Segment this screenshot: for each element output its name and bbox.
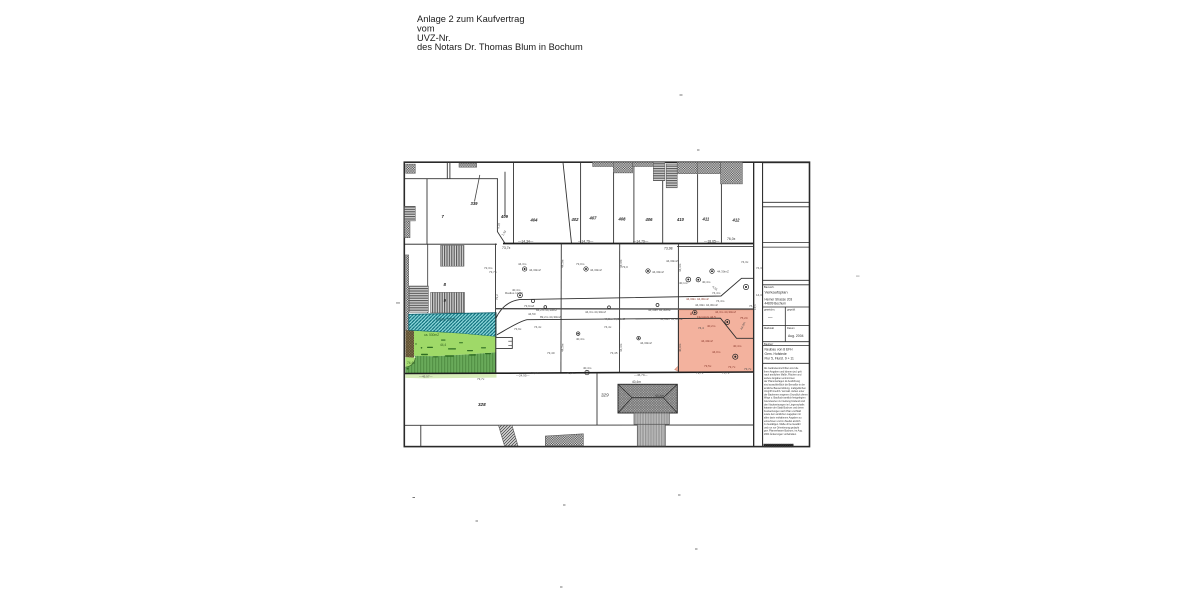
svg-text:14,3: 14,3 — [756, 293, 762, 297]
svg-text:410: 410 — [676, 217, 685, 222]
svg-text:des Notars Dr. Thomas Blum in: des Notars Dr. Thomas Blum in Bochum — [417, 42, 583, 52]
svg-text:339: 339 — [471, 201, 479, 206]
svg-text:44,3m: 44,3m — [619, 343, 623, 352]
svg-text:406: 406 — [645, 217, 654, 222]
svg-text:40,4m: 40,4m — [632, 380, 641, 384]
svg-text:73,98: 73,98 — [664, 247, 673, 251]
svg-text:Aug. 2004: Aug. 2004 — [788, 334, 804, 338]
svg-text:74,3x: 74,3x — [741, 260, 749, 264]
svg-text:73,0m: 73,0m — [576, 262, 585, 266]
svg-text:76,0x: 76,0x — [727, 237, 736, 241]
svg-text:73,7x: 73,7x — [728, 365, 736, 369]
svg-text:74,4m: 74,4m — [712, 291, 721, 295]
svg-text:44,30mZ: 44,30mZ — [640, 341, 652, 345]
svg-text:73,7x: 73,7x — [477, 377, 485, 381]
svg-text:44,50: 44,50 — [528, 312, 536, 316]
svg-text:Verkaufsplan: Verkaufsplan — [765, 290, 788, 295]
svg-text:geprüft: geprüft — [787, 308, 795, 312]
svg-text:44,0m: 44,0m — [712, 350, 721, 354]
svg-text:Flur 5, Flurst. 9 + 11: Flur 5, Flurst. 9 + 11 — [765, 357, 795, 361]
svg-text:44,30m 44,30mZ: 44,30m 44,30mZ — [648, 308, 671, 312]
svg-text:74,4m: 74,4m — [716, 299, 725, 303]
svg-text:44,30mZ: 44,30mZ — [590, 268, 602, 272]
svg-text:402: 402 — [571, 217, 580, 222]
svg-text:73,7x: 73,7x — [696, 371, 704, 375]
svg-text:44809 Bochum: 44809 Bochum — [765, 302, 787, 306]
svg-text:84,2m 44,30mZ: 84,2m 44,30mZ — [536, 308, 557, 312]
svg-text:408: 408 — [618, 217, 627, 222]
svg-text:328: 328 — [478, 402, 486, 407]
svg-text:40,4m: 40,4m — [583, 366, 592, 370]
svg-text:40,2m: 40,2m — [707, 324, 716, 328]
svg-text:Maßstab: Maßstab — [764, 326, 775, 330]
svg-text:329: 329 — [601, 393, 609, 398]
svg-text:44,30m 44,30mZ: 44,30m 44,30mZ — [660, 317, 683, 321]
svg-text:44,40mZ: 44,40mZ — [701, 339, 713, 343]
svg-text:44,4: 44,4 — [440, 343, 446, 347]
svg-text:44,3m: 44,3m — [518, 262, 527, 266]
svg-text:—14,34—: —14,34— — [518, 239, 534, 243]
svg-text:73,7x: 73,7x — [502, 246, 511, 250]
svg-text:44,3m 44,30mZ: 44,3m 44,30mZ — [585, 310, 606, 314]
svg-text:40,4m: 40,4m — [702, 280, 711, 284]
svg-text:Bauherr: Bauherr — [764, 342, 773, 346]
svg-text:—14,79—: —14,79— — [633, 239, 649, 243]
svg-text:40,9m: 40,9m — [678, 343, 682, 352]
svg-text:40,7m: 40,7m — [567, 371, 576, 375]
svg-text:—24,95—: —24,95— — [516, 374, 530, 378]
svg-text:73,5x: 73,5x — [704, 364, 712, 368]
svg-text:40,4m: 40,4m — [512, 288, 521, 292]
svg-text:411: 411 — [702, 217, 710, 222]
svg-text:89,2m 44,30mZ: 89,2m 44,30mZ — [540, 315, 561, 319]
svg-text:40,4m: 40,4m — [576, 337, 585, 341]
svg-text:407: 407 — [589, 216, 598, 221]
svg-text:Neubau von 8 EFH: Neubau von 8 EFH — [765, 348, 794, 352]
svg-text:44,30mZ: 44,30mZ — [652, 270, 664, 274]
svg-text:Flurstück 44,5: Flurstück 44,5 — [697, 315, 716, 319]
svg-text:74,4x: 74,4x — [604, 325, 612, 329]
svg-text:44,3m: 44,3m — [561, 259, 565, 268]
svg-text:Bauvorh.: Bauvorh. — [764, 285, 775, 289]
svg-text:44,30m 44,30mZ: 44,30m 44,30mZ — [695, 303, 718, 307]
svg-text:44,3m 44,30mZ: 44,3m 44,30mZ — [604, 317, 625, 321]
svg-text:gezeichn.: gezeichn. — [764, 308, 775, 312]
svg-text:73,75: 73,75 — [489, 270, 497, 274]
svg-text:75,24: 75,24 — [740, 316, 748, 320]
svg-text:40,1m: 40,1m — [679, 281, 688, 285]
svg-text:44,3m: 44,3m — [619, 259, 623, 268]
svg-text:44,3m: 44,3m — [561, 343, 565, 352]
svg-text:—46,70—: —46,70— — [634, 373, 648, 377]
svg-text:40,4m: 40,4m — [655, 394, 664, 398]
svg-text:73,40: 73,40 — [547, 351, 555, 355]
svg-text:73,9mZ: 73,9mZ — [524, 304, 534, 308]
svg-text:72,2: 72,2 — [495, 294, 499, 300]
svg-text:75,7x: 75,7x — [722, 371, 730, 375]
svg-text:—49,97—: —49,97— — [419, 375, 433, 379]
svg-text:Gem. Hofstede: Gem. Hofstede — [765, 352, 787, 356]
svg-text:—: — — [768, 315, 773, 320]
svg-text:ca. 530mZ: ca. 530mZ — [424, 333, 439, 337]
svg-text:44,30mZ: 44,30mZ — [666, 259, 678, 263]
svg-text:74,4: 74,4 — [698, 326, 704, 330]
svg-text:73,45: 73,45 — [610, 351, 618, 355]
svg-text:—18,65—: —18,65— — [704, 239, 720, 243]
svg-text:73,9x: 73,9x — [514, 327, 522, 331]
svg-text:74,3: 74,3 — [756, 266, 762, 270]
svg-text:404: 404 — [530, 218, 539, 223]
svg-text:74,4x: 74,4x — [407, 361, 415, 365]
svg-text:44,30mZ: 44,30mZ — [529, 268, 541, 272]
svg-text:Fläche 530m: Fläche 530m — [436, 318, 456, 322]
svg-text:44,30m 44,30mZ: 44,30m 44,30mZ — [686, 297, 709, 301]
svg-text:74,4x: 74,4x — [531, 371, 539, 375]
svg-text:74,4x: 74,4x — [534, 325, 542, 329]
svg-text:40,4m: 40,4m — [733, 344, 742, 348]
svg-text:73,7x: 73,7x — [744, 367, 752, 371]
svg-text:44,30mZ: 44,30mZ — [717, 270, 729, 274]
svg-text:44,3m 44,30mZ: 44,3m 44,30mZ — [715, 310, 736, 314]
svg-text:409: 409 — [500, 214, 509, 219]
svg-text:412: 412 — [732, 218, 741, 223]
svg-text:2004 Änderungen vorbehalten: 2004 Änderungen vorbehalten — [764, 433, 797, 436]
svg-text:—14,79—: —14,79— — [578, 239, 594, 243]
svg-text:Datum: Datum — [787, 326, 795, 330]
svg-text:14,1: 14,1 — [753, 304, 757, 310]
svg-text:44,3m: 44,3m — [678, 263, 682, 272]
